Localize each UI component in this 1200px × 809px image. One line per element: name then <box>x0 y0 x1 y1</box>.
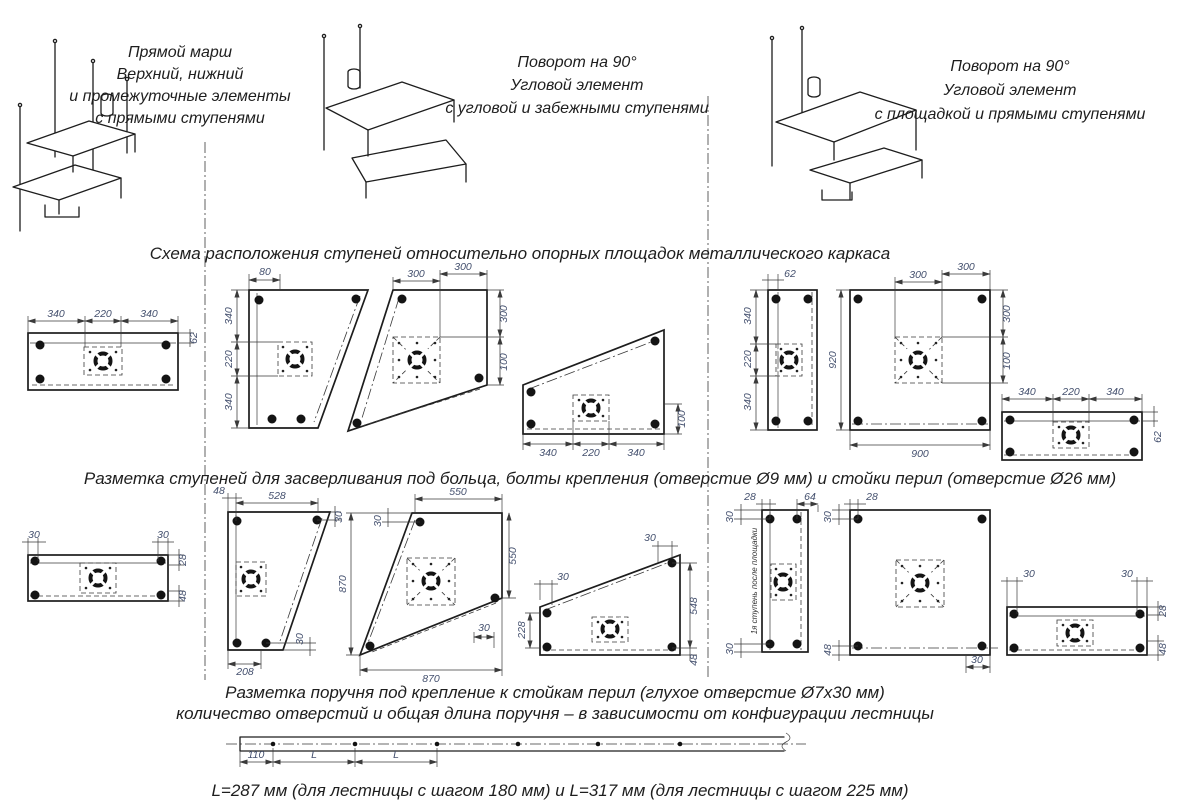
dim-label: 340 <box>1106 386 1124 398</box>
dim-label: 30 <box>28 529 40 541</box>
dim-label: 28 <box>177 554 189 567</box>
diagram-wedge-step-layout: 80 340 220 340 <box>223 266 368 428</box>
dim-label: 340 <box>1018 386 1036 398</box>
label-line: Угловой элемент <box>942 82 1076 99</box>
diagram-platform-strip-drilling: 1я ступень после площадки 28 64 30 30 <box>724 491 818 658</box>
drilling-section-heading: Разметка ступеней для засверливания под … <box>84 469 1116 488</box>
dim-label: 340 <box>140 308 158 320</box>
technical-drawing-page: Прямой марш Верхний, нижний и промежуточ… <box>0 0 1200 809</box>
step-outline <box>540 555 680 655</box>
handrail-hole <box>516 742 521 747</box>
label-line: Верхний, нижний <box>117 66 244 83</box>
dim-label: 28 <box>1157 605 1169 618</box>
dim-label: 28 <box>743 491 756 503</box>
handrail-hole <box>435 742 440 747</box>
stairs-assembly-drawing: Прямой марш Верхний, нижний и промежуточ… <box>0 0 1200 809</box>
dim-label: 920 <box>827 351 839 369</box>
dim-label: 48 <box>177 590 189 602</box>
dim-label: 300 <box>407 268 425 280</box>
dim-label: 64 <box>804 491 816 503</box>
dim-label: 100 <box>1001 352 1013 370</box>
dim-label: 48 <box>688 654 700 666</box>
label-line: и промежуточные элементы <box>69 88 291 105</box>
dim-label: 30 <box>822 511 834 523</box>
diagram-platform-strip-layout: 62 340 220 340 <box>742 268 817 430</box>
dim-label: 548 <box>688 597 700 615</box>
dim-label: 30 <box>971 654 983 666</box>
diagram-straight-step2-layout: 340 220 340 62 <box>1002 386 1164 460</box>
dim-label: 300 <box>957 261 975 273</box>
dim-label: 300 <box>454 261 472 273</box>
diagram-straight-step2-drilling: 30 30 28 48 <box>1001 568 1169 661</box>
strip-note-rotated: 1я ступень после площадки <box>750 527 759 634</box>
dim-label: 220 <box>742 350 754 369</box>
dim-label: 300 <box>909 269 927 281</box>
diagram-slant-step-drilling: 30 30 228 548 48 <box>516 532 700 666</box>
dim-label: 28 <box>865 491 878 503</box>
label-line: Прямой марш <box>128 44 232 61</box>
step-outline <box>768 290 817 430</box>
dim-label: 48 <box>822 644 834 656</box>
dim-label: 528 <box>268 490 286 502</box>
dim-label: 228 <box>516 621 528 640</box>
dim-label: 340 <box>223 393 235 411</box>
dim-label: 870 <box>422 673 440 685</box>
dim-label: L <box>393 749 399 761</box>
stair-type-label-1: Прямой марш Верхний, нижний и промежуточ… <box>69 44 291 127</box>
dim-label: 220 <box>1061 386 1080 398</box>
diagram-straight-step-layout: 340 220 340 62 <box>28 308 200 390</box>
label-line: с прямыми ступенями <box>95 110 265 127</box>
diagram-corner-step-layout: 300 300 300 100 <box>348 261 510 431</box>
handrail-heading-line1: Разметка поручня под крепление к стойкам… <box>225 683 885 702</box>
diagram-corner-step-drilling: 30 550 870 550 30 870 <box>337 486 519 685</box>
dim-label: 62 <box>784 268 796 280</box>
dim-label: 340 <box>539 447 557 459</box>
diagram-wedge-step-drilling: 48 528 30 208 30 <box>213 485 345 678</box>
dim-label: 220 <box>581 447 600 459</box>
dim-label: 340 <box>742 307 754 325</box>
dim-label: 900 <box>911 448 929 460</box>
dim-label: 30 <box>644 532 656 544</box>
length-note: L=287 мм (для лестницы с шагом 180 мм) и… <box>211 781 908 800</box>
dim-label: 62 <box>1152 431 1164 443</box>
dim-label: 48 <box>213 485 225 497</box>
label-line: Угловой элемент <box>509 77 643 94</box>
handrail-hole <box>271 742 276 747</box>
dim-label: 208 <box>235 666 254 678</box>
dim-label: 80 <box>259 266 271 278</box>
dim-label: 300 <box>1001 305 1013 323</box>
dim-label: 30 <box>1121 568 1133 580</box>
dim-label: 550 <box>449 486 467 498</box>
handrail-hole <box>678 742 683 747</box>
dim-label: 550 <box>507 547 519 565</box>
stair-type-label-2: Поворот на 90° Угловой элемент с угловой… <box>445 54 708 117</box>
dim-label: 30 <box>157 529 169 541</box>
stair-type-label-3: Поворот на 90° Угловой элемент с площадк… <box>875 58 1146 123</box>
dim-label: 340 <box>627 447 645 459</box>
handrail-hole <box>353 742 358 747</box>
dim-label: 870 <box>337 575 349 593</box>
dim-label: 100 <box>676 410 688 428</box>
diagram-platform-square-drilling: 28 30 48 30 <box>822 491 998 673</box>
layout-section-heading: Схема расположения ступеней относительно… <box>150 244 891 263</box>
dim-label: 340 <box>223 307 235 325</box>
diagram-handrail-drilling: 110 L L <box>226 733 806 767</box>
dim-label: 62 <box>188 332 200 344</box>
diagram-platform-square-layout: 300 300 920 900 300 100 <box>827 261 1013 460</box>
diagram-slant-step-layout: 340 220 340 100 <box>523 330 688 459</box>
diagram-straight-step-drilling: 30 30 28 48 <box>22 529 189 607</box>
dim-label: 110 <box>248 749 265 761</box>
dim-label: 30 <box>724 643 736 655</box>
dim-label: 220 <box>223 350 235 369</box>
dim-label: 30 <box>372 515 384 527</box>
label-line: с угловой и забежными ступенями <box>445 100 708 117</box>
dim-label: 30 <box>333 511 345 523</box>
dim-label: L <box>311 749 317 761</box>
label-line: с площадкой и прямыми ступенями <box>875 106 1146 123</box>
label-line: Поворот на 90° <box>517 54 637 71</box>
handrail-heading-line2: количество отверстий и общая длина поруч… <box>176 704 934 723</box>
dim-label: 30 <box>557 571 569 583</box>
dim-label: 340 <box>742 393 754 411</box>
dim-label: 340 <box>47 308 65 320</box>
dim-label: 30 <box>724 511 736 523</box>
dim-label: 30 <box>294 633 306 645</box>
step-outline <box>249 290 368 428</box>
label-line: Поворот на 90° <box>950 58 1070 75</box>
dim-label: 300 <box>498 305 510 323</box>
dim-label: 48 <box>1157 643 1169 655</box>
dim-label: 30 <box>478 622 490 634</box>
dim-label: 100 <box>498 353 510 371</box>
dim-label: 30 <box>1023 568 1035 580</box>
handrail-hole <box>596 742 601 747</box>
dim-label: 220 <box>93 308 112 320</box>
